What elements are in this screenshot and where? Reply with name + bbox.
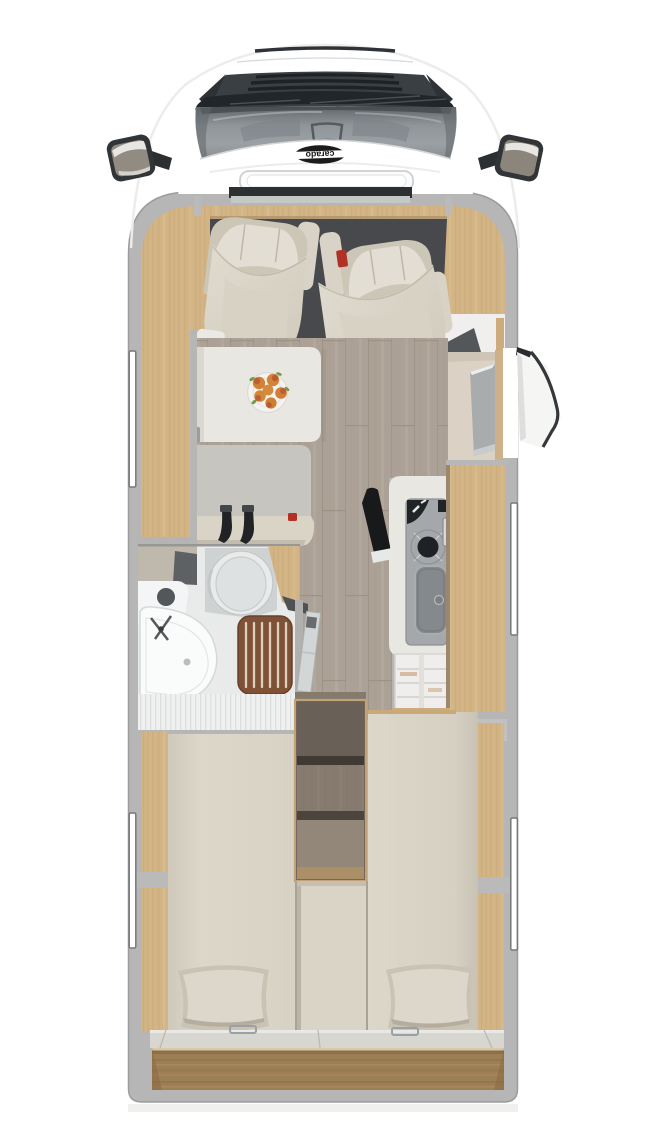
svg-text:carado: carado xyxy=(305,149,335,160)
